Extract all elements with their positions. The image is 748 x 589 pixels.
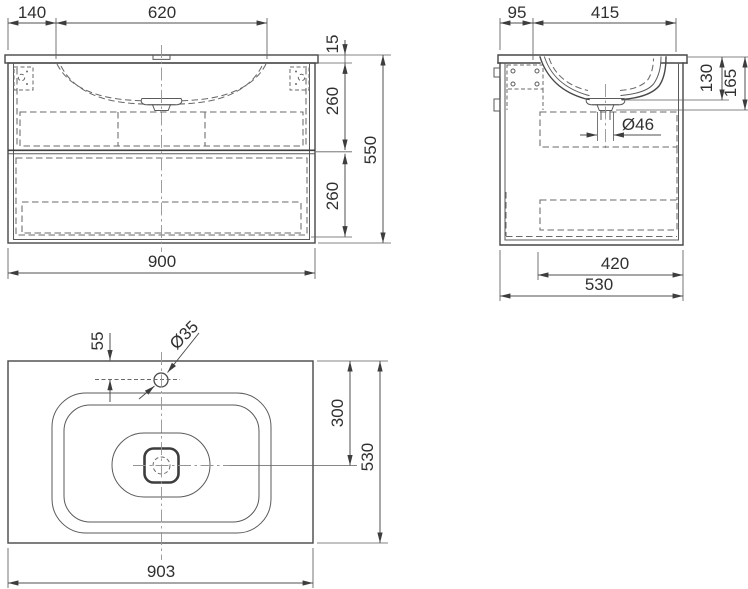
side-countertop xyxy=(498,55,687,63)
side-basin-section xyxy=(540,57,666,100)
front-dim-900-label: 900 xyxy=(148,252,176,271)
wall-rail-lower xyxy=(494,99,500,111)
front-dim-15-label: 15 xyxy=(323,35,342,54)
top-dim-903-label: 903 xyxy=(147,562,175,581)
vanity-technical-drawing: 140 620 15 260 260 550 900 xyxy=(0,0,748,589)
side-dim-d46-label: Ø46 xyxy=(622,115,654,134)
side-drain xyxy=(586,84,625,148)
front-dim-260a-label: 260 xyxy=(323,87,342,115)
top-view: 55 Ø35 300 530 903 xyxy=(8,317,388,588)
front-dim-550-label: 550 xyxy=(361,136,380,164)
front-dimensions: 140 620 15 260 260 550 900 xyxy=(8,3,391,279)
top-dim-300-label: 300 xyxy=(328,399,347,427)
drawing-sheet: 140 620 15 260 260 550 900 xyxy=(0,0,748,589)
front-dim-140-label: 140 xyxy=(18,3,46,22)
side-dim-420-label: 420 xyxy=(601,254,629,273)
side-view: 95 415 130 165 Ø46 420 530 xyxy=(494,3,748,301)
top-extension-lines xyxy=(8,361,388,588)
side-dim-95-label: 95 xyxy=(508,3,527,22)
wall-bracket-icon xyxy=(507,65,543,110)
front-view: 140 620 15 260 260 550 900 xyxy=(5,3,391,279)
side-dim-130-label: 130 xyxy=(697,64,716,92)
front-dim-260b-label: 260 xyxy=(323,182,342,210)
top-dimensions: 55 Ø35 300 530 903 xyxy=(8,317,388,588)
top-dim-d35-label: Ø35 xyxy=(166,317,202,353)
top-dim-530-label: 530 xyxy=(358,443,377,471)
wall-rail-upper xyxy=(494,68,500,77)
side-dim-530-label: 530 xyxy=(585,275,613,294)
side-dim-415-label: 415 xyxy=(591,3,619,22)
top-dim-55-label: 55 xyxy=(88,332,107,351)
side-dim-165-label: 165 xyxy=(721,69,740,97)
top-basin-bottom-outline xyxy=(112,433,210,497)
side-dimensions: 95 415 130 165 Ø46 420 530 xyxy=(500,3,748,301)
top-faucet-hole xyxy=(95,373,180,387)
front-dim-620-label: 620 xyxy=(148,3,176,22)
